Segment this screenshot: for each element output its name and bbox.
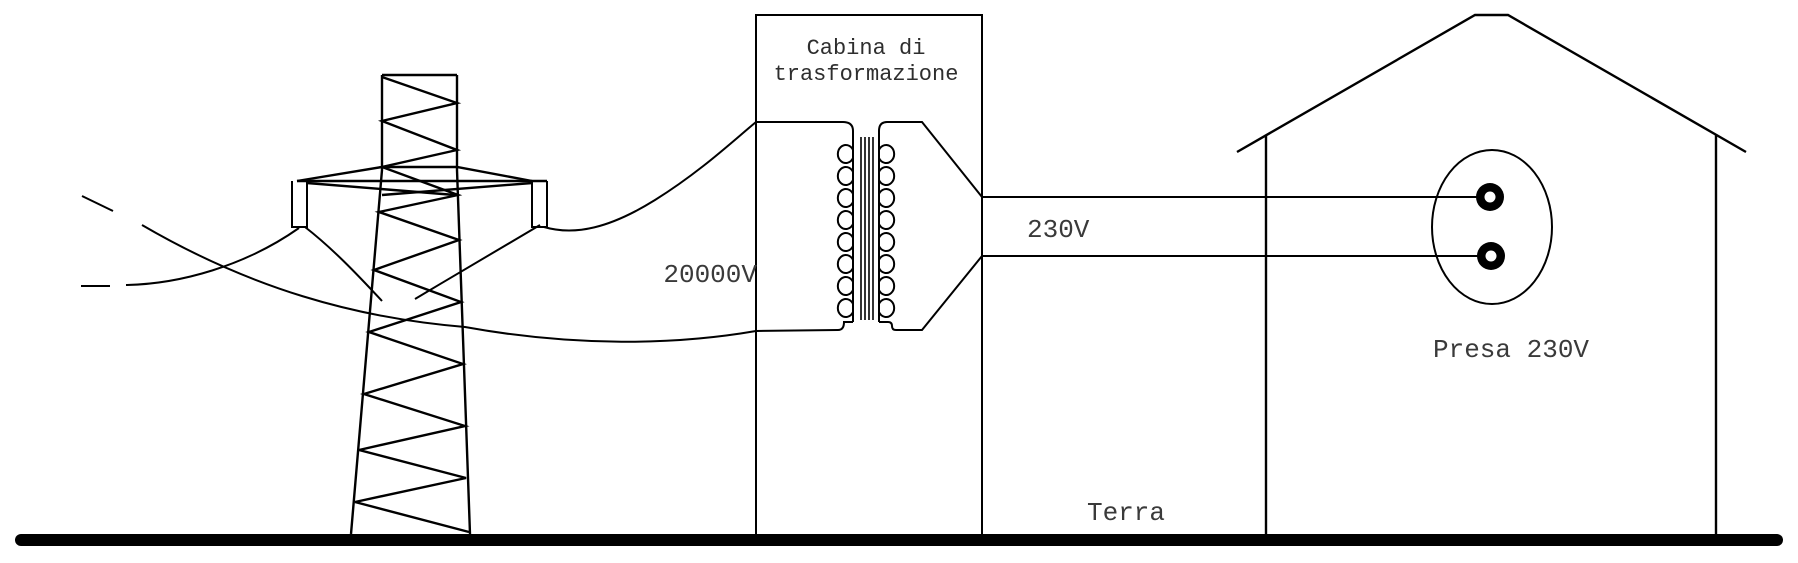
- transformer-core: [861, 137, 873, 320]
- primary-top-wire: [544, 122, 853, 322]
- power-distribution-diagram: Cabina di trasformazione 20000V 230V Pre…: [0, 0, 1798, 563]
- transformer-icon: [838, 137, 894, 320]
- socket-faceplate: [1432, 150, 1552, 304]
- secondary-bottom-wire: [879, 256, 1491, 330]
- power-socket-icon: [1432, 150, 1552, 304]
- low-voltage-lines: [879, 122, 1491, 330]
- diagram-canvas: Cabina di trasformazione 20000V 230V Pre…: [0, 0, 1798, 563]
- high-voltage-lines: [81, 122, 853, 342]
- tower-lattice-zigzag: [355, 77, 469, 532]
- house-roof: [1237, 15, 1746, 152]
- transformer-primary-coil: [838, 145, 853, 317]
- insulator-left: [292, 181, 307, 227]
- tower-right-leg: [457, 75, 470, 534]
- tower-left-leg: [351, 75, 382, 534]
- primary-voltage-label: 20000V: [663, 260, 757, 290]
- house-icon: [1237, 15, 1746, 534]
- socket-hole-bottom-center: [1486, 251, 1497, 262]
- incoming-wire-dash-upper: [82, 196, 113, 211]
- cabin-title-line2: trasformazione: [774, 62, 959, 87]
- secondary-top-wire: [879, 122, 1490, 322]
- left-insulator-drop-wire: [305, 227, 382, 301]
- socket-hole-top-center: [1485, 192, 1496, 203]
- transformer-secondary-coil: [879, 145, 894, 317]
- right-insulator-drop-wire: [415, 225, 540, 299]
- incoming-wire-to-left-insulator: [126, 228, 299, 285]
- socket-label: Presa 230V: [1433, 335, 1589, 365]
- cabin-title-line1: Cabina di: [807, 36, 926, 61]
- insulator-right: [532, 181, 547, 227]
- ground-label: Terra: [1087, 498, 1165, 528]
- secondary-voltage-label: 230V: [1027, 215, 1090, 245]
